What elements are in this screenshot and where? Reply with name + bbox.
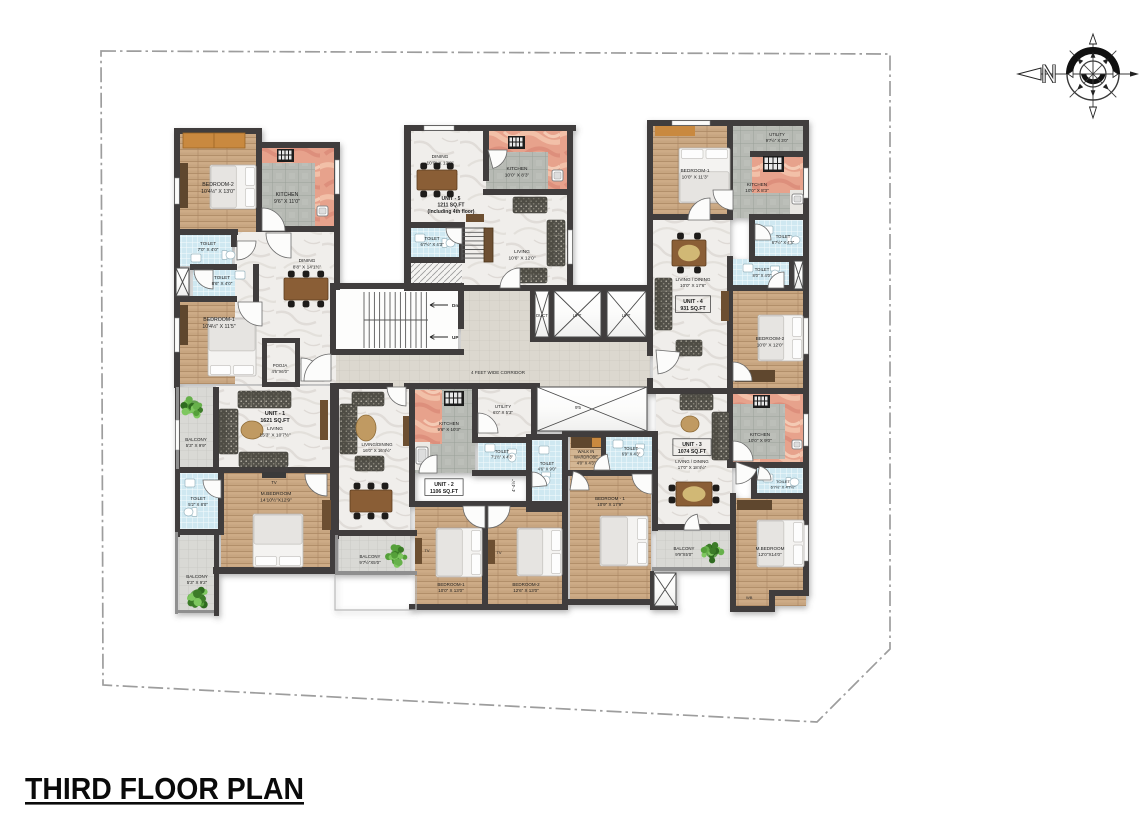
svg-text:4'6" X 9'0": 4'6" X 9'0" <box>538 467 557 472</box>
svg-text:TV: TV <box>424 548 429 553</box>
svg-text:10'0" X 11'3": 10'0" X 11'3" <box>682 174 709 180</box>
svg-text:LIFT: LIFT <box>573 313 582 318</box>
svg-text:BEDROOM-2: BEDROOM-2 <box>512 582 540 587</box>
svg-text:TOILET: TOILET <box>755 267 770 272</box>
svg-text:4'-4½": 4'-4½" <box>510 479 516 492</box>
svg-text:TOILET: TOILET <box>200 241 216 246</box>
svg-text:BEDROOM-1: BEDROOM-1 <box>680 168 709 174</box>
svg-text:5'2" X 8'0": 5'2" X 8'0" <box>188 502 208 507</box>
svg-text:TV: TV <box>271 480 277 485</box>
svg-text:15'3" X 10'7½": 15'3" X 10'7½" <box>259 431 290 438</box>
svg-text:LIVING: LIVING <box>267 426 283 432</box>
svg-text:6'7½" X 4'7½": 6'7½" X 4'7½" <box>771 485 796 490</box>
svg-text:BEDROOM-2: BEDROOM-2 <box>202 182 234 188</box>
svg-text:UP: UP <box>452 335 458 340</box>
svg-text:TOILET: TOILET <box>540 461 555 466</box>
svg-text:9'6" X 10'3": 9'6" X 10'3" <box>438 427 461 432</box>
svg-text:BALCONY: BALCONY <box>185 437 207 442</box>
svg-text:12'0"X14'0": 12'0"X14'0" <box>758 552 782 557</box>
svg-text:4'0" X 4'3": 4'0" X 4'3" <box>577 460 596 465</box>
svg-text:8'6" X 4'0": 8'6" X 4'0" <box>212 281 233 286</box>
svg-text:UNIT - 1: UNIT - 1 <box>265 411 285 417</box>
svg-text:17'0" X 18'4½": 17'0" X 18'4½" <box>678 465 707 470</box>
svg-text:WARDROBE: WARDROBE <box>574 455 598 460</box>
svg-text:10'0" X 8'3": 10'0" X 8'3" <box>745 188 769 193</box>
svg-text:12'6" X 13'0": 12'6" X 13'0" <box>513 588 539 593</box>
svg-text:LIVING / DINING: LIVING / DINING <box>676 277 711 282</box>
svg-text:9'6" X 11'0": 9'6" X 11'0" <box>274 199 300 205</box>
svg-text:6'9" X 4'3": 6'9" X 4'3" <box>622 452 641 457</box>
svg-text:8'8" X 14'1½": 8'8" X 14'1½" <box>293 263 322 270</box>
svg-text:UNIT - 4: UNIT - 4 <box>683 299 703 305</box>
svg-text:7'0" X 4'0": 7'0" X 4'0" <box>198 247 219 252</box>
svg-text:KITCHEN: KITCHEN <box>506 166 528 172</box>
svg-text:1074 SQ.FT: 1074 SQ.FT <box>678 449 707 455</box>
svg-text:10'0" X 17'6": 10'0" X 17'6" <box>680 283 706 288</box>
svg-text:TOILET: TOILET <box>191 496 206 501</box>
svg-text:9'9"X5'0": 9'9"X5'0" <box>675 552 693 557</box>
svg-text:KITCHEN: KITCHEN <box>750 432 770 437</box>
svg-text:7'1½" X 4'3": 7'1½" X 4'3" <box>491 455 514 460</box>
svg-text:UNIT - 3: UNIT - 3 <box>682 442 702 448</box>
svg-text:BALCONY: BALCONY <box>186 574 208 579</box>
svg-text:10'9" X 17'9": 10'9" X 17'9" <box>597 502 623 507</box>
svg-text:UNIT - 5: UNIT - 5 <box>442 196 461 202</box>
svg-text:10'4½" X 13'0": 10'4½" X 13'0" <box>201 188 235 195</box>
svg-text:TOILET: TOILET <box>624 446 639 451</box>
svg-text:THIRD FLOOR PLAN: THIRD FLOOR PLAN <box>25 771 304 806</box>
svg-text:6'0" X 5'3": 6'0" X 5'3" <box>493 410 513 415</box>
svg-text:WALK IN: WALK IN <box>578 449 595 454</box>
svg-text:LIVING / DINING: LIVING / DINING <box>675 459 709 464</box>
svg-text:6'7½" X 4'3": 6'7½" X 4'3" <box>772 240 795 245</box>
svg-text:KITCHEN: KITCHEN <box>747 182 767 187</box>
svg-text:M.BEDROOM: M.BEDROOM <box>756 546 785 551</box>
svg-text:931 SQ.FT: 931 SQ.FT <box>680 306 706 312</box>
svg-text:DUCT: DUCT <box>536 313 548 318</box>
svg-text:BEDROOM-1: BEDROOM-1 <box>437 582 465 587</box>
svg-text:LIVING/DINING: LIVING/DINING <box>362 442 394 447</box>
svg-text:M.BEDROOM: M.BEDROOM <box>261 491 292 497</box>
svg-text:TOILET: TOILET <box>214 275 230 280</box>
svg-text:1621 SQ.FT: 1621 SQ.FT <box>260 418 290 424</box>
svg-text:WB: WB <box>746 595 753 600</box>
svg-text:9'7½"X5'0": 9'7½"X5'0" <box>359 560 381 565</box>
svg-text:1106 SQ.FT: 1106 SQ.FT <box>430 489 459 495</box>
svg-text:POOJA: POOJA <box>273 363 288 368</box>
svg-text:5'3" X 9'2": 5'3" X 9'2" <box>187 580 208 585</box>
svg-text:10'0" X 12'8": 10'0" X 12'8" <box>426 160 453 166</box>
svg-text:10'0" X 9'0": 10'0" X 9'0" <box>748 438 772 443</box>
svg-text:4 FEET WIDE CORRIDOR: 4 FEET WIDE CORRIDOR <box>471 370 526 375</box>
svg-text:10'6" X 12'0": 10'6" X 12'0" <box>508 255 535 261</box>
svg-text:Dn.: Dn. <box>452 303 459 308</box>
svg-text:LIFT: LIFT <box>622 313 631 318</box>
svg-text:BALCONY: BALCONY <box>674 546 695 551</box>
svg-text:1211 SQ.FT: 1211 SQ.FT <box>438 203 465 209</box>
svg-text:10'0" X 13'0": 10'0" X 13'0" <box>438 588 464 593</box>
svg-text:KITCHEN: KITCHEN <box>439 421 459 426</box>
svg-text:LIVING: LIVING <box>514 249 530 255</box>
svg-text:14'10½"X12'9": 14'10½"X12'9" <box>260 497 292 504</box>
svg-text:BEDROOM-1: BEDROOM-1 <box>203 317 235 323</box>
svg-text:BEDROOM - 1: BEDROOM - 1 <box>595 496 625 501</box>
svg-text:UTILITY: UTILITY <box>495 404 511 409</box>
svg-text:10'0" X 8'3": 10'0" X 8'3" <box>505 172 530 178</box>
svg-text:TV: TV <box>496 550 501 555</box>
svg-text:(Including 4th floor): (Including 4th floor) <box>428 209 475 215</box>
svg-text:10'4½" X 11'5": 10'4½" X 11'5" <box>202 323 235 330</box>
svg-text:TOILET: TOILET <box>425 236 440 241</box>
svg-text:UTILITY: UTILITY <box>769 132 785 137</box>
svg-text:BALCONY: BALCONY <box>360 554 381 559</box>
svg-text:4'6"X6'0": 4'6"X6'0" <box>271 369 289 374</box>
svg-text:8'0" X 4'0": 8'0" X 4'0" <box>752 273 772 278</box>
svg-text:DINING: DINING <box>299 258 316 264</box>
svg-text:6'7½" X 4'3": 6'7½" X 4'3" <box>420 242 444 247</box>
svg-text:9'5: 9'5 <box>575 405 581 410</box>
svg-text:TOILET: TOILET <box>776 234 791 239</box>
svg-text:TOILET: TOILET <box>495 449 510 454</box>
svg-text:TOILET: TOILET <box>776 479 790 484</box>
svg-text:KITCHEN: KITCHEN <box>276 192 299 198</box>
svg-text:UNIT - 2: UNIT - 2 <box>434 482 454 488</box>
svg-text:9'7½" X 3'0": 9'7½" X 3'0" <box>766 138 789 143</box>
svg-text:5'3" X 9'9": 5'3" X 9'9" <box>186 443 207 448</box>
svg-text:10'0" X 12'0": 10'0" X 12'0" <box>757 342 784 347</box>
svg-text:16'0" X 16'4½": 16'0" X 16'4½" <box>363 448 392 453</box>
svg-text:BEDROOM-2: BEDROOM-2 <box>756 336 785 341</box>
svg-text:DINING: DINING <box>432 154 449 160</box>
